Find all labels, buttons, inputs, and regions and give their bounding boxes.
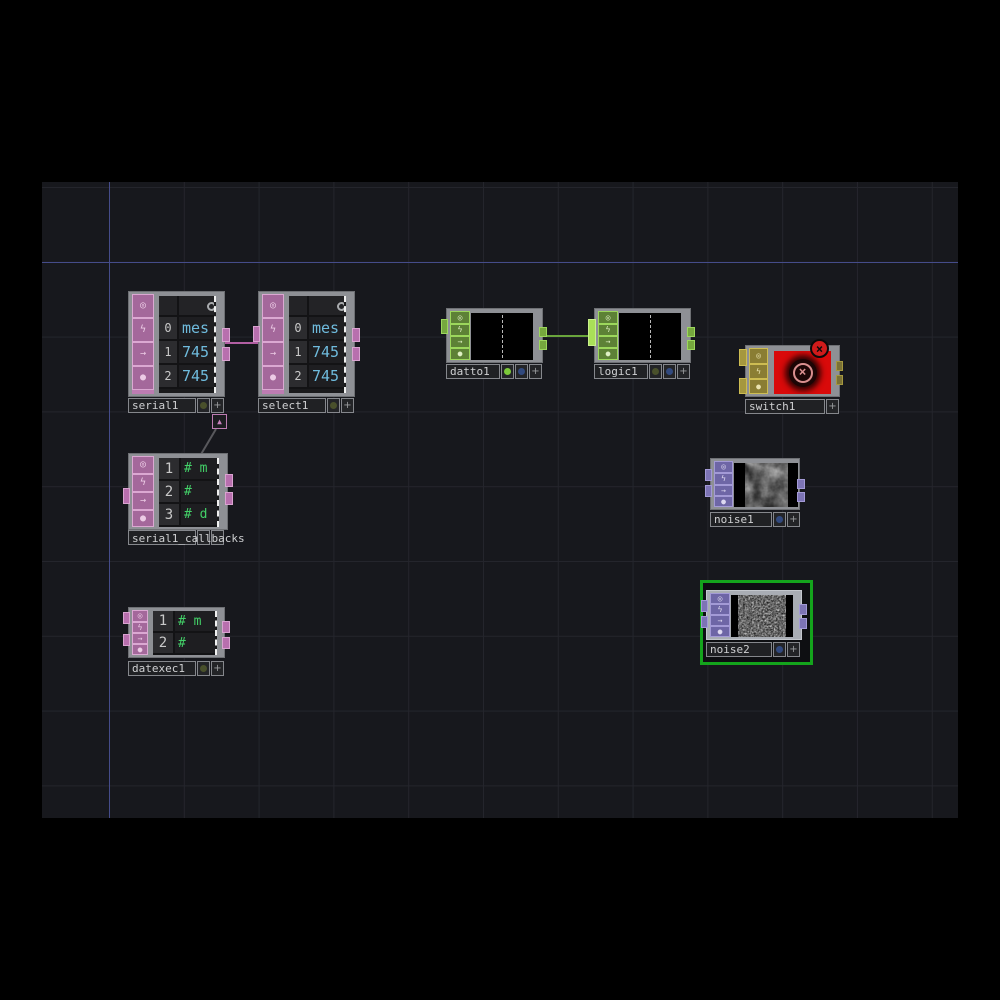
bomb-flag-glyph: ● [721, 498, 726, 506]
export-flag-glyph: → [721, 487, 726, 495]
noise2-namebar: noise2 + [706, 642, 802, 657]
plus-icon: + [531, 366, 539, 377]
serial1-callbacks-text-viewer[interactable]: 1 # m 2 # 3 # d [159, 458, 219, 527]
bomb-flag-icon[interactable]: ● [132, 510, 154, 527]
plus-icon: + [343, 400, 351, 411]
bypass-flag-icon[interactable]: ϟ [450, 324, 470, 336]
bomb-flag-glyph: ● [140, 373, 146, 383]
bypass-flag-icon[interactable]: ϟ [710, 604, 730, 615]
bypass-flag-icon[interactable]: ϟ [598, 324, 618, 336]
audio-dot-icon [666, 368, 673, 375]
export-flag-glyph: → [718, 617, 723, 625]
expand-button[interactable]: + [341, 398, 354, 413]
bomb-flag-glyph: ● [756, 383, 761, 391]
bypass-flag-icon[interactable]: ϟ [262, 318, 284, 342]
viewer-dot-icon [504, 368, 511, 375]
text-row: 3 # d [159, 504, 217, 527]
plus-icon: + [789, 514, 797, 525]
expand-button[interactable]: + [529, 364, 542, 379]
node-noise1[interactable]: ◎ ϟ → ● [710, 458, 800, 510]
input-connector[interactable] [123, 612, 130, 624]
error-emblem-icon: × [789, 359, 817, 387]
audio-toggle-button[interactable] [773, 642, 786, 657]
audio-dot-icon [776, 516, 783, 523]
plus-icon: + [679, 366, 687, 377]
viewer-flag-icon[interactable]: ◎ [132, 294, 154, 318]
bomb-flag-glyph: ● [606, 350, 611, 358]
table-header-row [289, 296, 344, 317]
network-editor: ◎ ϟ → ● 0 mes 1 745 2 745 [0, 0, 1000, 1000]
bomb-flag-glyph: ● [270, 373, 276, 383]
datto1-chop-viewer[interactable] [471, 313, 533, 360]
bypass-flag-icon[interactable]: ϟ [749, 364, 768, 379]
input-connector[interactable] [705, 469, 712, 481]
viewer-flag-icon[interactable]: ◎ [262, 294, 284, 318]
viewer-toggle-button[interactable] [327, 398, 340, 413]
node-name-field[interactable]: datto1 [446, 364, 500, 379]
expand-button[interactable]: + [787, 512, 800, 527]
export-flag-icon[interactable]: → [598, 336, 618, 348]
node-name-field[interactable]: datexec1 [128, 661, 196, 676]
viewer-dot-icon [200, 665, 207, 672]
viewer-toggle-button[interactable] [501, 364, 514, 379]
bomb-flag-icon[interactable]: ● [714, 496, 733, 507]
output-connector[interactable] [836, 375, 843, 385]
viewer-flag-glyph: ◎ [138, 612, 143, 620]
output-connector[interactable] [222, 621, 230, 633]
viewer-dot-icon [652, 368, 659, 375]
datexec1-text-viewer[interactable]: 1 # m 2 # [153, 611, 217, 655]
export-flag-icon[interactable]: → [132, 492, 154, 510]
serial1-namebar: serial1 + [128, 398, 225, 413]
plus-icon: + [828, 401, 836, 412]
viewer-flag-glyph: ◎ [718, 595, 723, 603]
export-flag-icon[interactable]: → [710, 615, 730, 626]
export-flag-glyph: → [270, 349, 276, 359]
plus-icon: + [789, 644, 797, 655]
node-logic1[interactable]: ◎ ϟ → ● [594, 308, 691, 363]
output-connector[interactable] [799, 604, 807, 615]
input-connector[interactable] [701, 616, 708, 628]
viewer-dot-icon [330, 402, 337, 409]
datto1-namebar: datto1 + [446, 364, 543, 379]
grid-axis-horizontal [42, 262, 958, 263]
noise2-preview-image [738, 595, 786, 637]
export-flag-icon[interactable]: → [714, 485, 733, 496]
node-serial1[interactable]: ◎ ϟ → ● 0 mes 1 745 2 745 [128, 291, 225, 397]
table-row: 0 mes [289, 317, 344, 341]
plus-icon: + [213, 663, 221, 674]
viewer-flag-icon[interactable]: ◎ [714, 461, 733, 473]
bypass-flag-glyph: ϟ [458, 326, 463, 334]
input-connector[interactable] [739, 349, 747, 366]
viewer-flag-icon[interactable]: ◎ [749, 348, 768, 364]
logic1-namebar: logic1 + [594, 364, 691, 379]
node-name-field[interactable]: logic1 [594, 364, 648, 379]
table-row: 2 745 [159, 365, 214, 389]
node-color-strip [132, 390, 154, 394]
grid-axis-vertical [109, 182, 110, 818]
bypass-flag-icon[interactable]: ϟ [132, 474, 154, 492]
output-connector[interactable] [797, 479, 805, 489]
output-connector[interactable] [225, 492, 233, 505]
node-serial1-callbacks[interactable]: ◎ ϟ → ● 1 # m 2 # 3 # d [128, 453, 228, 530]
viewer-flag-glyph: ◎ [721, 463, 726, 471]
node-select1[interactable]: ◎ ϟ → ● 0 mes 1 745 2 745 [258, 291, 355, 397]
viewer-flag-glyph: ◎ [140, 460, 146, 470]
bomb-flag-icon[interactable]: ● [132, 366, 154, 390]
node-name-field[interactable]: noise1 [710, 512, 772, 527]
node-name-field[interactable]: serial1 [128, 398, 196, 413]
input-connector[interactable] [253, 326, 260, 342]
bomb-flag-icon[interactable]: ● [598, 348, 618, 360]
viewer-flag-glyph: ◎ [458, 314, 463, 322]
input-connector[interactable] [705, 485, 712, 497]
output-connector[interactable] [539, 327, 547, 337]
dock-connector[interactable]: ▲ [212, 414, 227, 429]
output-connector[interactable] [539, 340, 547, 350]
table-row: 1 745 [289, 341, 344, 365]
node-name-field[interactable]: noise2 [706, 642, 772, 657]
noise1-namebar: noise1 + [710, 512, 801, 527]
text-row: 1 # m [153, 611, 215, 633]
plus-icon: + [213, 400, 221, 411]
audio-toggle-button[interactable] [663, 364, 676, 379]
output-connector[interactable] [799, 618, 807, 629]
bypass-flag-glyph: ϟ [140, 478, 146, 488]
bomb-flag-icon[interactable]: ● [262, 366, 284, 390]
node-noise2[interactable]: ◎ ϟ → ● [706, 590, 802, 640]
table-header-row [159, 296, 214, 317]
node-datto1[interactable]: ◎ ϟ → ● [446, 308, 543, 363]
text-row: 2 # [159, 481, 217, 504]
bypass-flag-glyph: ϟ [270, 325, 276, 335]
table-row: 1 745 [159, 341, 214, 365]
export-flag-glyph: → [140, 349, 146, 359]
node-name-field[interactable]: switch1 [745, 399, 825, 414]
expand-button[interactable]: + [677, 364, 690, 379]
bypass-flag-glyph: ϟ [606, 326, 611, 334]
bypass-flag-glyph: ϟ [718, 606, 723, 614]
bypass-flag-glyph: ϟ [138, 624, 143, 632]
bomb-flag-icon[interactable]: ● [749, 379, 768, 394]
viewer-flag-glyph: ◎ [606, 314, 611, 322]
expand-button[interactable]: + [211, 398, 224, 413]
error-x-icon: × [816, 342, 823, 356]
audio-toggle-button[interactable] [515, 364, 528, 379]
export-flag-icon[interactable]: → [262, 342, 284, 366]
output-connector[interactable] [687, 327, 695, 337]
noise2-top-viewer[interactable] [731, 595, 793, 637]
output-connector[interactable] [836, 361, 843, 371]
dock-arrow-icon: ▲ [217, 418, 222, 426]
input-connector[interactable] [701, 600, 708, 612]
expand-button[interactable]: + [787, 642, 800, 657]
bomb-flag-glyph: ● [140, 514, 146, 524]
viewer-toggle-button[interactable] [197, 398, 210, 413]
viewer-dot-icon [200, 402, 207, 409]
text-row: 1 # m [159, 458, 217, 481]
bomb-flag-glyph: ● [138, 646, 143, 654]
expand-button[interactable]: + [211, 661, 224, 676]
bomb-flag-glyph: ● [458, 350, 463, 358]
bomb-flag-glyph: ● [718, 628, 723, 636]
viewer-flag-icon[interactable]: ◎ [598, 311, 618, 324]
noise1-preview-image [745, 463, 788, 507]
viewer-flag-icon[interactable]: ◎ [132, 610, 148, 622]
bomb-flag-icon[interactable]: ● [132, 644, 148, 655]
bypass-flag-glyph: ϟ [756, 368, 761, 376]
serial1-table-viewer[interactable]: 0 mes 1 745 2 745 [159, 296, 216, 393]
viewer-flag-icon[interactable]: ◎ [132, 456, 154, 474]
bomb-flag-icon[interactable]: ● [710, 626, 730, 637]
output-connector[interactable] [687, 340, 695, 350]
export-flag-icon[interactable]: → [132, 342, 154, 366]
export-flag-icon[interactable]: → [132, 633, 148, 644]
input-connector[interactable] [123, 634, 130, 646]
node-name-field[interactable]: serial1_callbacks [128, 530, 196, 545]
node-name-field[interactable]: select1 [258, 398, 326, 413]
viewer-flag-icon[interactable]: ◎ [710, 593, 730, 604]
viewer-toggle-button[interactable] [649, 364, 662, 379]
output-connector[interactable] [352, 347, 360, 361]
audio-dot-icon [776, 646, 783, 653]
output-connector[interactable] [222, 347, 230, 361]
viewer-flag-glyph: ◎ [140, 301, 146, 311]
output-connector[interactable] [225, 474, 233, 487]
input-connector[interactable] [588, 319, 596, 346]
export-flag-glyph: → [140, 496, 146, 506]
datexec1-namebar: datexec1 + [128, 661, 225, 676]
audio-dot-icon [518, 368, 525, 375]
export-flag-glyph: → [138, 635, 143, 643]
export-flag-glyph: → [458, 338, 463, 346]
viewer-flag-icon[interactable]: ◎ [450, 311, 470, 324]
viewer-flag-glyph: ◎ [756, 352, 761, 360]
table-row: 2 745 [289, 365, 344, 389]
noise1-top-viewer[interactable] [734, 463, 798, 507]
logic1-chop-viewer[interactable] [619, 313, 681, 360]
table-row: 0 mes [159, 317, 214, 341]
output-connector[interactable] [797, 492, 805, 502]
export-flag-glyph: → [606, 338, 611, 346]
table-scroll-indicator [207, 302, 216, 311]
bypass-flag-glyph: ϟ [721, 475, 726, 483]
output-connector[interactable] [352, 328, 360, 342]
audio-toggle-button[interactable] [773, 512, 786, 527]
switch1-namebar: switch1 + [745, 399, 840, 414]
select1-table-viewer[interactable]: 0 mes 1 745 2 745 [289, 296, 346, 393]
serial1-callbacks-namebar: serial1_callbacks [128, 530, 224, 545]
input-connector[interactable] [123, 488, 130, 504]
input-connector[interactable] [739, 378, 747, 394]
bypass-flag-icon[interactable]: ϟ [132, 622, 148, 633]
table-scroll-indicator [337, 302, 346, 311]
node-color-strip [262, 390, 284, 394]
node-datexec1[interactable]: ◎ ϟ → ● 1 # m 2 # [128, 607, 225, 658]
viewer-flag-glyph: ◎ [270, 301, 276, 311]
expand-button[interactable]: + [826, 399, 839, 414]
bypass-flag-glyph: ϟ [140, 325, 146, 335]
input-connector[interactable] [441, 319, 448, 334]
bomb-flag-icon[interactable]: ● [450, 348, 470, 360]
bypass-flag-icon[interactable]: ϟ [714, 473, 733, 485]
export-flag-icon[interactable]: → [450, 336, 470, 348]
text-row: 2 # [153, 633, 215, 655]
bypass-flag-icon[interactable]: ϟ [132, 318, 154, 342]
output-connector[interactable] [222, 328, 230, 342]
select1-namebar: select1 + [258, 398, 355, 413]
error-badge[interactable]: × [810, 339, 829, 358]
output-connector[interactable] [222, 637, 230, 649]
viewer-toggle-button[interactable] [197, 661, 210, 676]
